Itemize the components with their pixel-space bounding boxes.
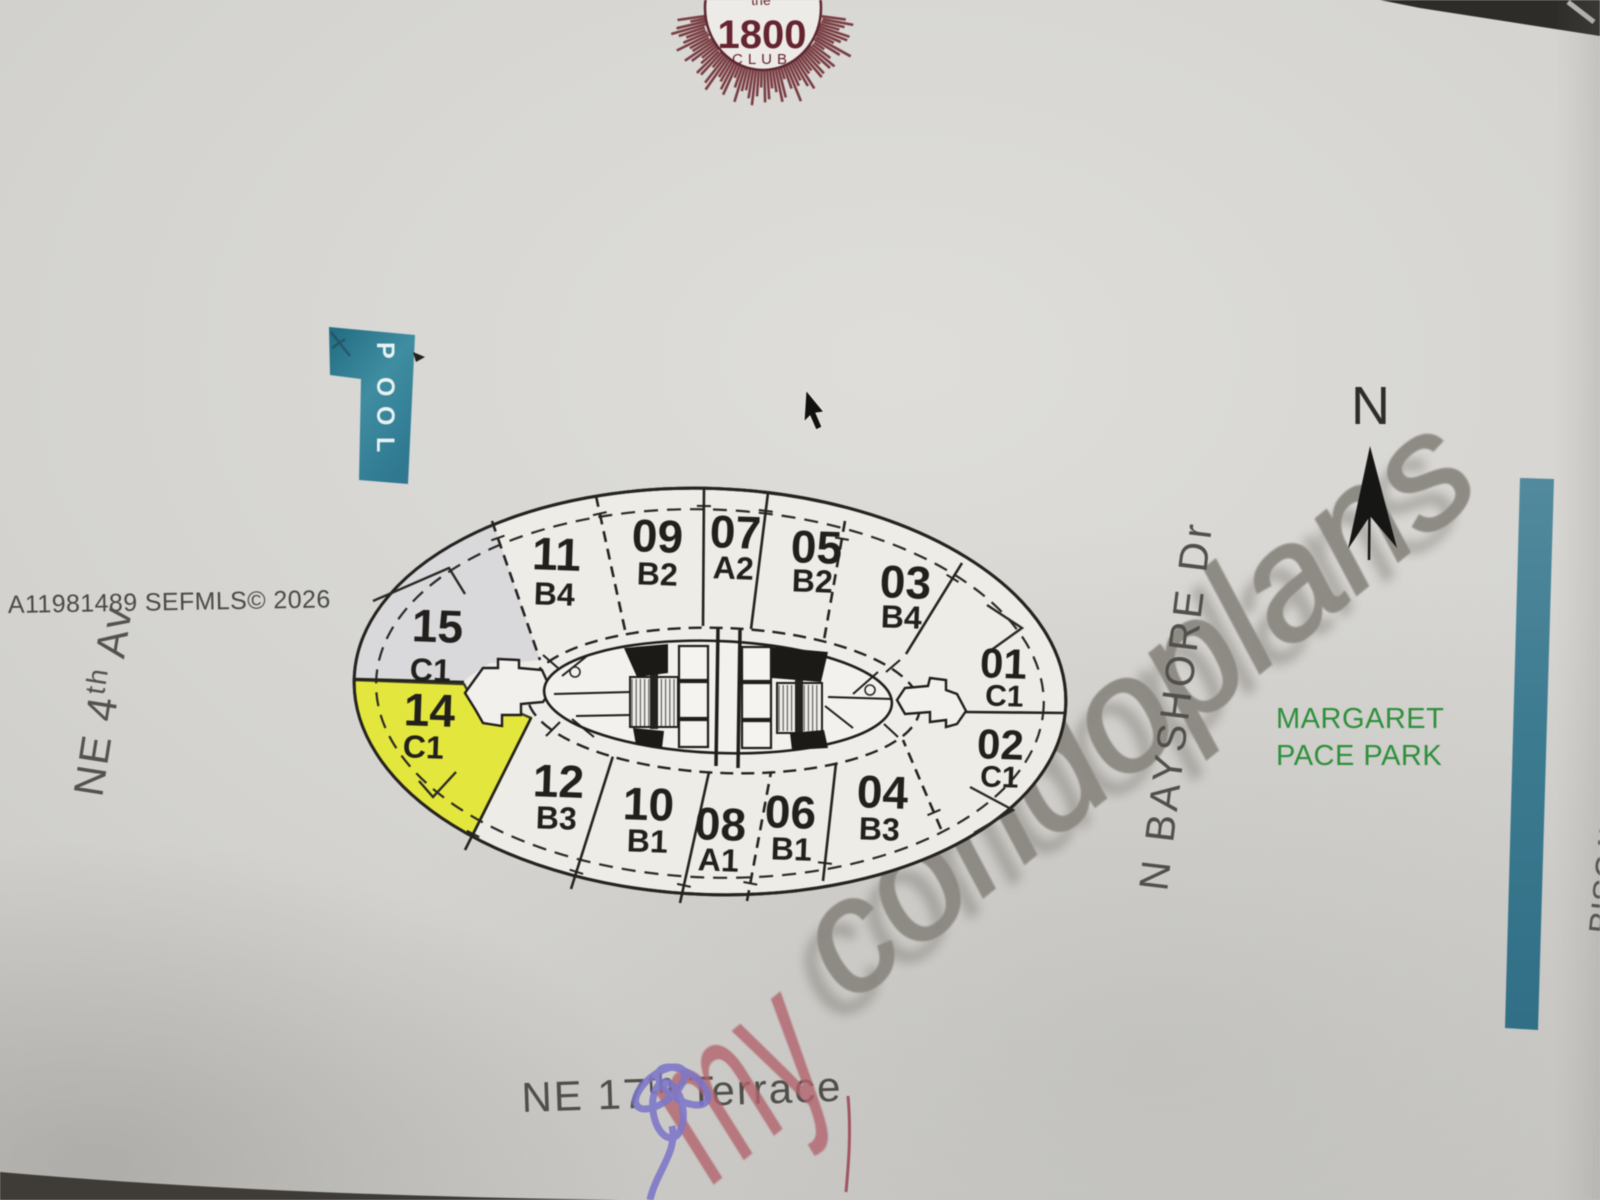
svg-text:B4: B4 [533,575,575,612]
svg-text:A11981489 SEFMLS© 2026: A11981489 SEFMLS© 2026 [8,585,331,619]
svg-text:C1: C1 [980,760,1019,794]
svg-text:B2: B2 [791,562,833,599]
svg-text:15: 15 [411,599,464,653]
svg-text:O: O [371,406,399,427]
svg-text:PACE PARK: PACE PARK [1276,740,1442,772]
svg-text:B1: B1 [770,830,812,867]
svg-text:B2: B2 [636,555,678,592]
svg-text:C1: C1 [985,679,1024,713]
svg-text:CLUB: CLUB [732,51,792,68]
svg-text:B3: B3 [535,799,577,836]
svg-text:11: 11 [531,527,581,581]
svg-text:P: P [371,342,399,361]
svg-text:B1: B1 [626,822,668,859]
svg-text:B3: B3 [858,810,900,847]
svg-text:C1: C1 [402,728,444,765]
svg-text:B4: B4 [880,598,922,635]
svg-text:A1: A1 [697,841,739,878]
svg-text:N: N [1351,376,1390,436]
svg-text:the: the [751,0,771,8]
svg-text:NE 4th Av: NE 4th Av [63,602,140,799]
svg-text:A2: A2 [712,549,754,586]
svg-text:MARGARET: MARGARET [1276,703,1444,735]
svg-text:O: O [371,377,399,398]
svg-text:L: L [371,437,399,454]
